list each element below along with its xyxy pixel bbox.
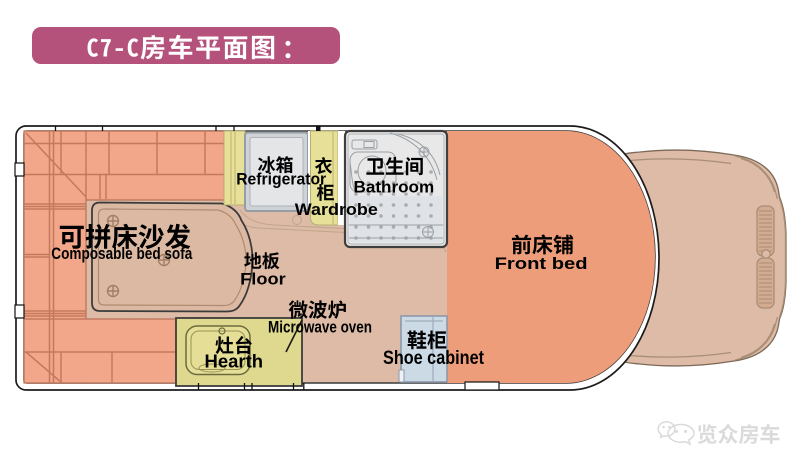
svg-text:Microwave oven: Microwave oven	[268, 318, 372, 337]
svg-text:Front bed: Front bed	[495, 255, 588, 273]
svg-text:Hearth: Hearth	[205, 352, 264, 372]
svg-text:Floor: Floor	[240, 270, 286, 289]
svg-text:Shoe cabinet: Shoe cabinet	[383, 348, 485, 369]
svg-text:Composable bed sofa: Composable bed sofa	[51, 245, 193, 263]
svg-text:Wardrobe: Wardrobe	[295, 200, 378, 219]
svg-text:Refrigerator: Refrigerator	[236, 170, 327, 188]
svg-text:Bathroom: Bathroom	[354, 179, 435, 197]
